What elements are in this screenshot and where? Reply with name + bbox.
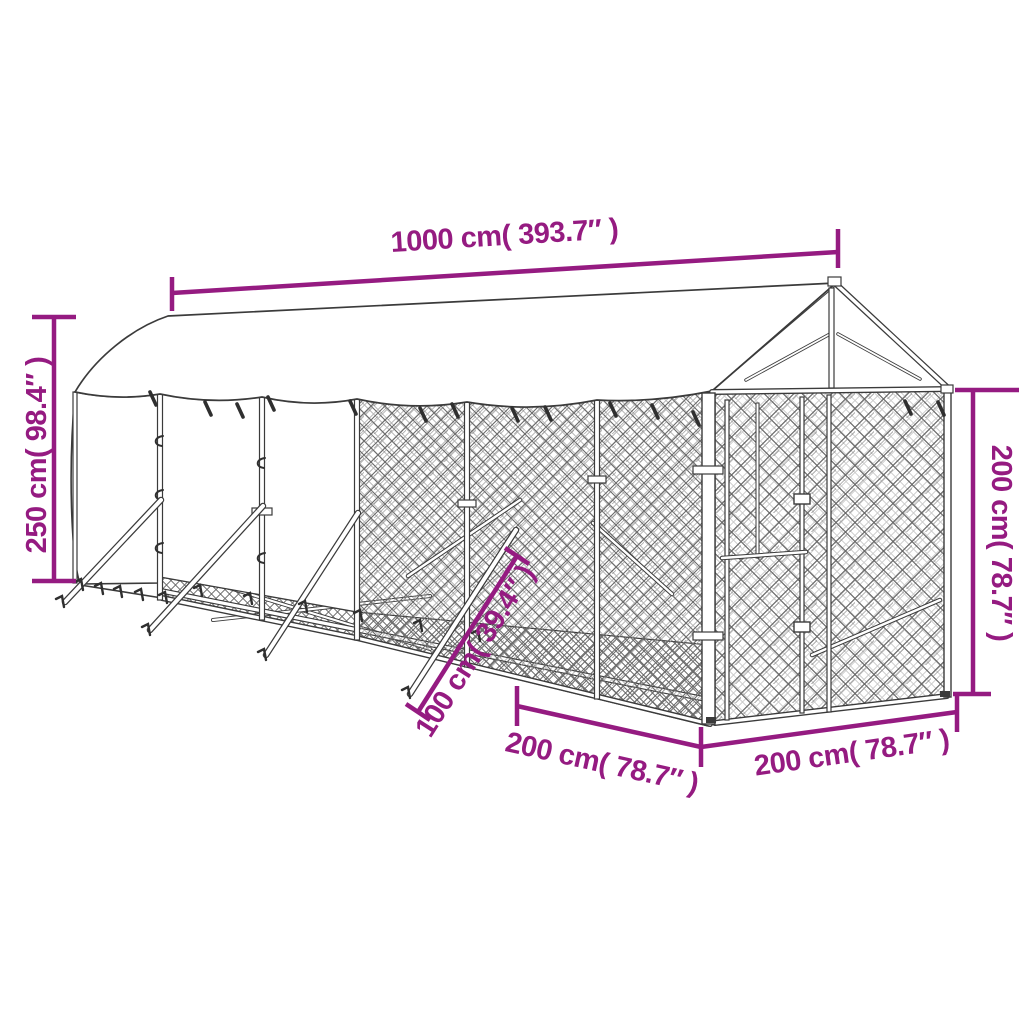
side-tarp-panels <box>160 394 357 612</box>
dimension-height-left-label: 250 cm( 98.4″ ) <box>21 357 53 554</box>
door-hinge <box>794 622 810 632</box>
kennel-dimension-diagram: 1000 cm( 393.7″ ) 250 cm( 98.4″ ) 200 cm… <box>0 0 1024 1024</box>
front-corner-post <box>702 393 715 724</box>
far-corner-post <box>944 387 951 697</box>
right-end-wall <box>693 385 953 724</box>
left-end-tarp-panel <box>71 392 160 584</box>
door-hinge <box>794 494 810 504</box>
kennel-diagram-svg: 1000 cm( 393.7″ ) 250 cm( 98.4″ ) 200 cm… <box>0 0 1024 1024</box>
dimension-height-right-label: 200 cm( 78.7″ ) <box>985 445 1017 642</box>
